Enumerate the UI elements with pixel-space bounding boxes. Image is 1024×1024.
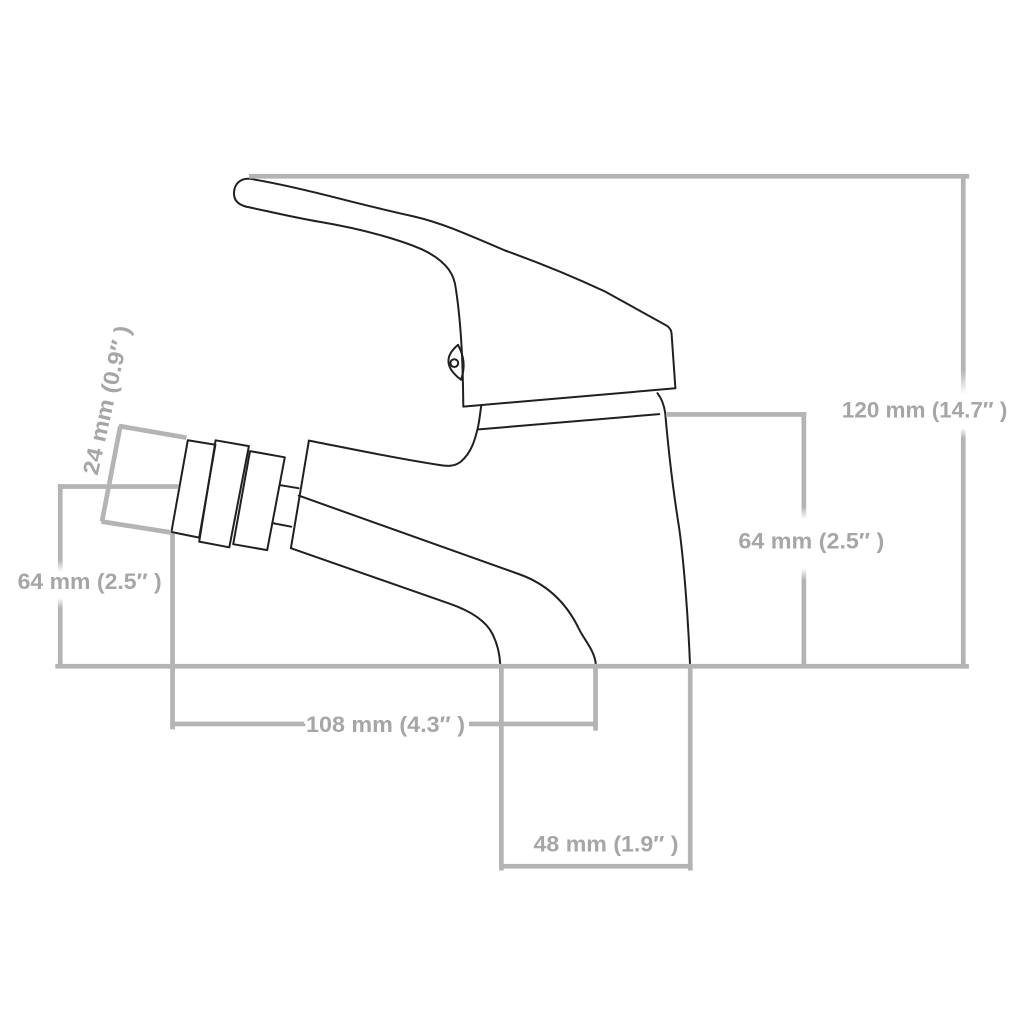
svg-text:120 mm (14.7″ ): 120 mm (14.7″ ) [842,398,1007,423]
svg-text:64 mm (2.5″ ): 64 mm (2.5″ ) [18,569,162,594]
svg-text:48 mm (1.9″ ): 48 mm (1.9″ ) [534,832,679,857]
svg-text:108 mm (4.3″ ): 108 mm (4.3″ ) [306,712,465,737]
svg-text:64 mm (2.5″ ): 64 mm (2.5″ ) [738,529,884,554]
